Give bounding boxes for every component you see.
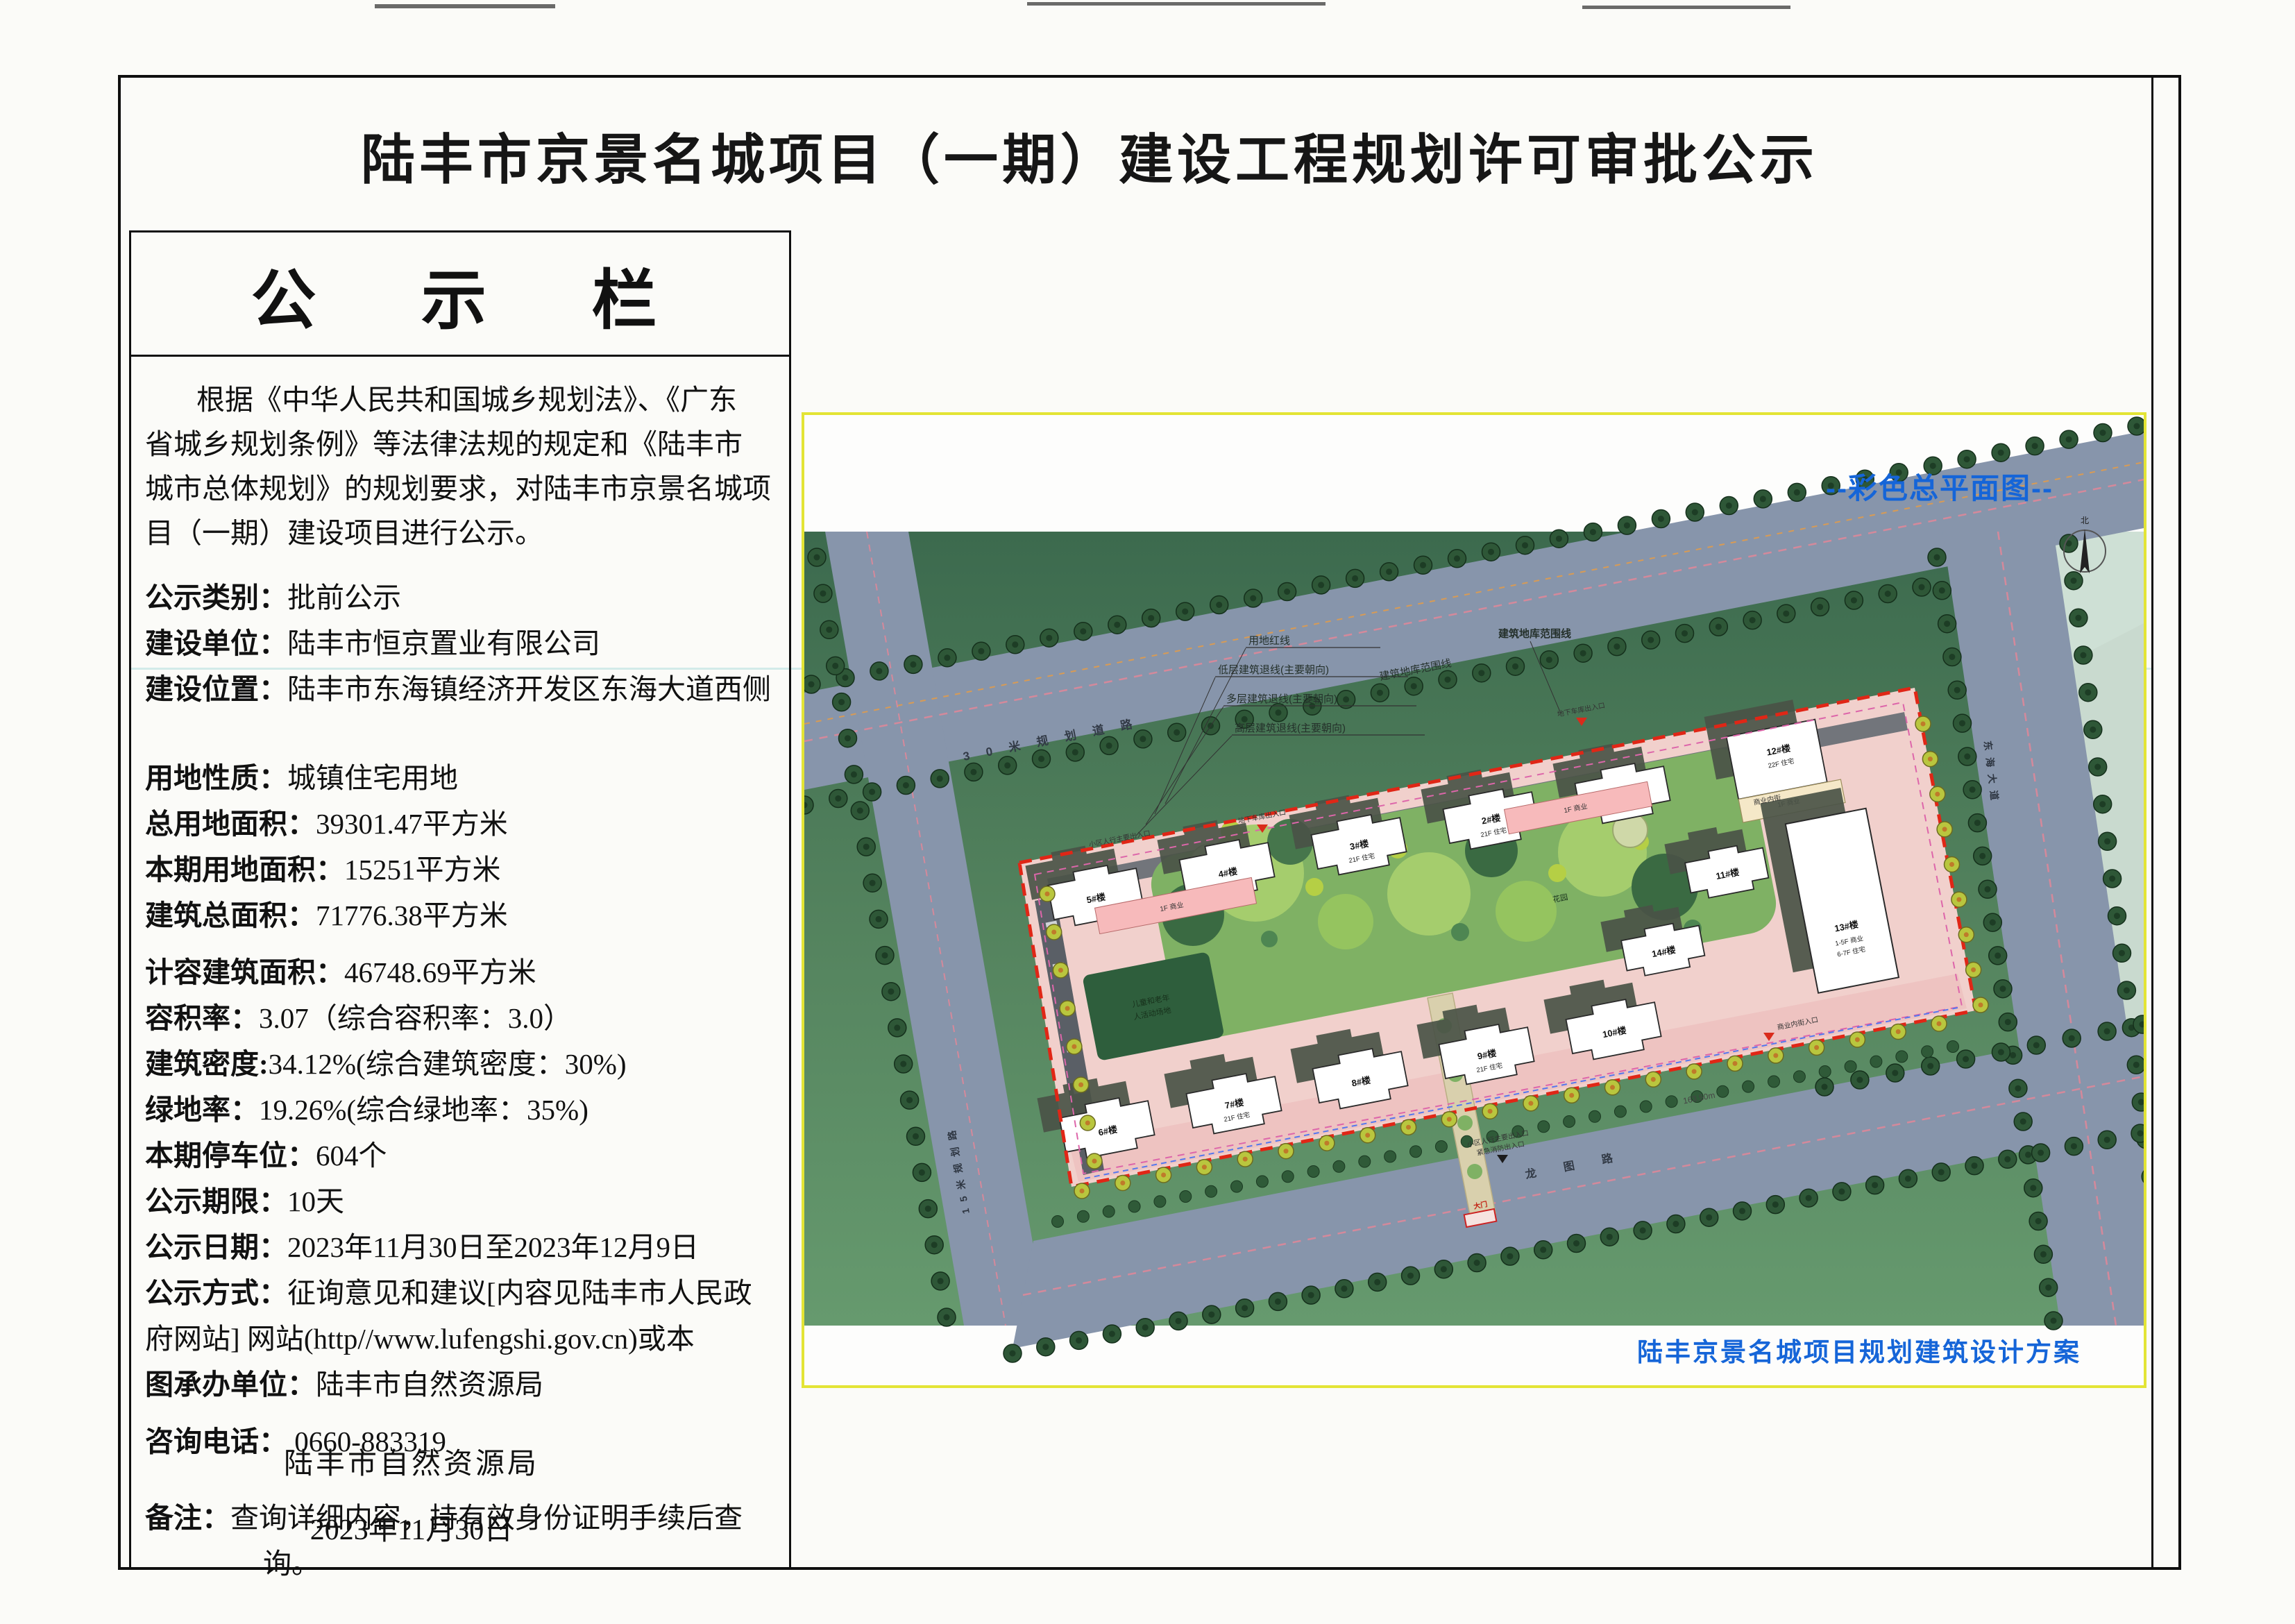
field-value: 10天: [287, 1185, 344, 1217]
field-value: 15251平方米: [344, 854, 501, 886]
field-label: 公示期限：: [145, 1185, 287, 1217]
intro-line: 省城乡规划条例》等法律法规的规定和《陆丰市: [145, 422, 775, 466]
site-plan-figure: 儿童和老年 人活动场地 花园 大门 5#楼: [802, 412, 2146, 1388]
signature-block: 陆丰市自然资源局 2023年11月30日: [131, 1440, 789, 1548]
field-land-use: 用地性质：城镇住宅用地: [145, 755, 775, 801]
field-label: 计容建筑面积：: [145, 956, 344, 988]
field-value: 陆丰市自然资源局: [316, 1369, 543, 1401]
field-notice-method-cont: 府网站] 网站(http//www.lufengshi.gov.cn)或本: [145, 1316, 775, 1362]
svg-text:用地红线: 用地红线: [1248, 635, 1290, 647]
field-value: 34.12%(综合建筑密度：30%): [269, 1048, 627, 1080]
field-parking: 本期停车位：604个: [145, 1133, 775, 1178]
field-label: 容积率：: [145, 1002, 259, 1034]
field-total-floor-area: 建筑总面积：71776.38平方米: [145, 893, 775, 938]
field-value: 府网站] 网站(http//www.lufengshi.gov.cn)或本: [145, 1323, 695, 1355]
scan-artifact: [1027, 2, 1326, 6]
field-label: 总用地面积：: [145, 808, 316, 840]
field-label: 建筑密度:: [145, 1048, 269, 1080]
field-counted-floor-area: 计容建筑面积：46748.69平方米: [145, 949, 775, 995]
field-list: 公示类别：批前公示 建设单位：陆丰市恒京置业有限公司 建设位置：陆丰市东海镇经济…: [145, 575, 775, 1464]
field-total-land-area: 总用地面积：39301.47平方米: [145, 801, 775, 847]
svg-text:高层建筑退线(主要朝向): 高层建筑退线(主要朝向): [1235, 722, 1346, 734]
field-label: 用地性质：: [145, 762, 287, 794]
svg-text:多层建筑退线(主要朝向): 多层建筑退线(主要朝向): [1226, 693, 1337, 705]
signature-date: 2023年11月30日: [83, 1506, 740, 1548]
field-label: 图承办单位：: [145, 1369, 316, 1401]
field-notice-type: 公示类别：批前公示: [145, 575, 775, 620]
signature-org: 陆丰市自然资源局: [83, 1440, 740, 1482]
garage-line-label: 建筑地库范围线: [1498, 627, 1571, 640]
field-label: 建设位置：: [145, 673, 287, 705]
field-value: 39301.47平方米: [316, 808, 508, 840]
field-building-density: 建筑密度:34.12%(综合建筑密度：30%): [145, 1041, 775, 1087]
site-plan-drawing: 儿童和老年 人活动场地 花园 大门 5#楼: [804, 415, 2144, 1385]
field-label: 本期用地面积：: [145, 854, 344, 886]
field-value: 城镇住宅用地: [287, 762, 458, 794]
field-location: 建设位置：陆丰市东海镇经济开发区东海大道西侧: [145, 666, 775, 712]
field-green-ratio: 绿地率：19.26%(综合绿地率：35%): [145, 1087, 775, 1133]
field-value: 陆丰市恒京置业有限公司: [287, 627, 600, 659]
field-label: 公示类别：: [145, 582, 287, 614]
scanned-notice-sheet: 陆丰市京景名城项目（一期）建设工程规划许可审批公示 公 示 栏 根据《中华人民共…: [0, 0, 2295, 1624]
notice-board-panel: 公 示 栏 根据《中华人民共和国城乡规划法》、《广东 省城乡规划条例》等法律法规…: [129, 230, 791, 1570]
field-value: 陆丰市东海镇经济开发区东海大道西侧: [287, 673, 771, 705]
svg-text:北: 北: [2081, 516, 2089, 525]
intro-line: 根据《中华人民共和国城乡规划法》、《广东: [145, 378, 775, 422]
field-value: 71776.38平方米: [316, 899, 508, 931]
page-title: 陆丰市京景名城项目（一期）建设工程规划许可审批公示: [180, 117, 1999, 194]
field-value: 3.07（综合容积率：3.0）: [259, 1002, 572, 1034]
field-notice-date: 公示日期：2023年11月30日至2023年12月9日: [145, 1224, 775, 1270]
field-value: 19.26%(综合绿地率：35%): [259, 1094, 588, 1126]
field-plot-ratio: 容积率：3.07（综合容积率：3.0）: [145, 995, 775, 1041]
field-builder: 建设单位：陆丰市恒京置业有限公司: [145, 620, 775, 666]
field-notice-period: 公示期限：10天: [145, 1178, 775, 1224]
sheet-frame-inner-line: [2151, 75, 2153, 1570]
field-label: 本期停车位：: [145, 1140, 316, 1172]
scan-artifact: [375, 4, 555, 8]
intro-line: 目（一期）建设项目进行公示。: [145, 511, 775, 555]
field-label: 公示方式：: [145, 1277, 287, 1309]
intro-line: 城市总体规划》的规划要求，对陆丰市京景名城项: [145, 466, 775, 511]
field-value: 604个: [316, 1140, 387, 1172]
field-value: 46748.69平方米: [344, 956, 536, 988]
board-header: 公 示 栏: [131, 232, 789, 357]
field-value: 批前公示: [287, 582, 401, 614]
field-label: 建设单位：: [145, 627, 287, 659]
field-notice-method: 公示方式：征询意见和建议[内容见陆丰市人民政: [145, 1270, 775, 1316]
field-handling-unit: 图承办单位：陆丰市自然资源局: [145, 1362, 775, 1407]
field-value: 征询意见和建议[内容见陆丰市人民政: [287, 1277, 752, 1309]
plan-caption-top: --彩色总平面图--: [1826, 465, 2053, 507]
field-label: 公示日期：: [145, 1231, 287, 1263]
field-label: 建筑总面积：: [145, 899, 316, 931]
field-label: 绿地率：: [145, 1094, 259, 1126]
scan-artifact: [1582, 6, 1790, 9]
board-body: 根据《中华人民共和国城乡规划法》、《广东 省城乡规划条例》等法律法规的规定和《陆…: [131, 357, 789, 1587]
field-value: 2023年11月30日至2023年12月9日: [287, 1231, 699, 1263]
field-phase-land-area: 本期用地面积：15251平方米: [145, 847, 775, 893]
plan-caption-bottom: 陆丰京景名城项目规划建筑设计方案: [1637, 1331, 2081, 1369]
